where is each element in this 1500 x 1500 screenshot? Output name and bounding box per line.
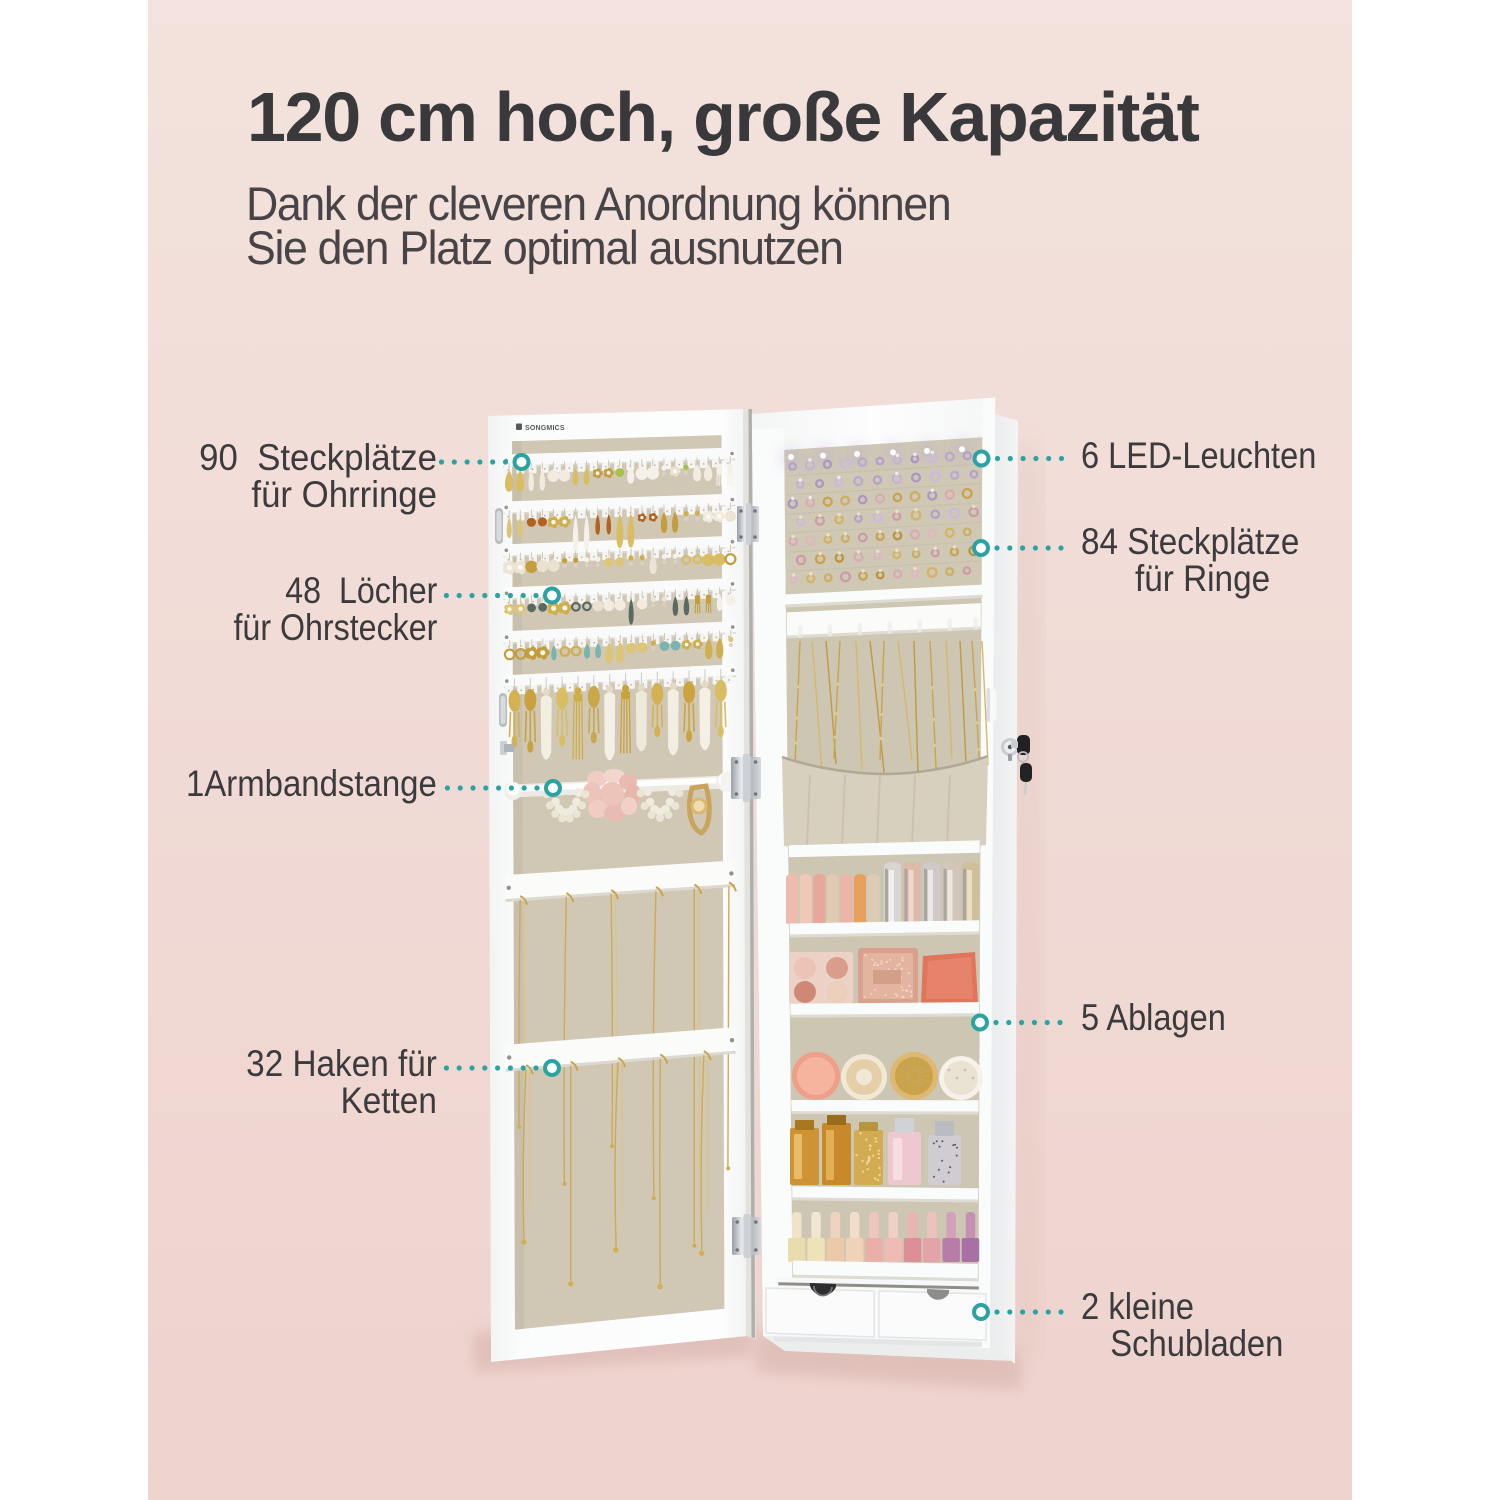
- svg-text:SONGMICS: SONGMICS: [525, 425, 565, 432]
